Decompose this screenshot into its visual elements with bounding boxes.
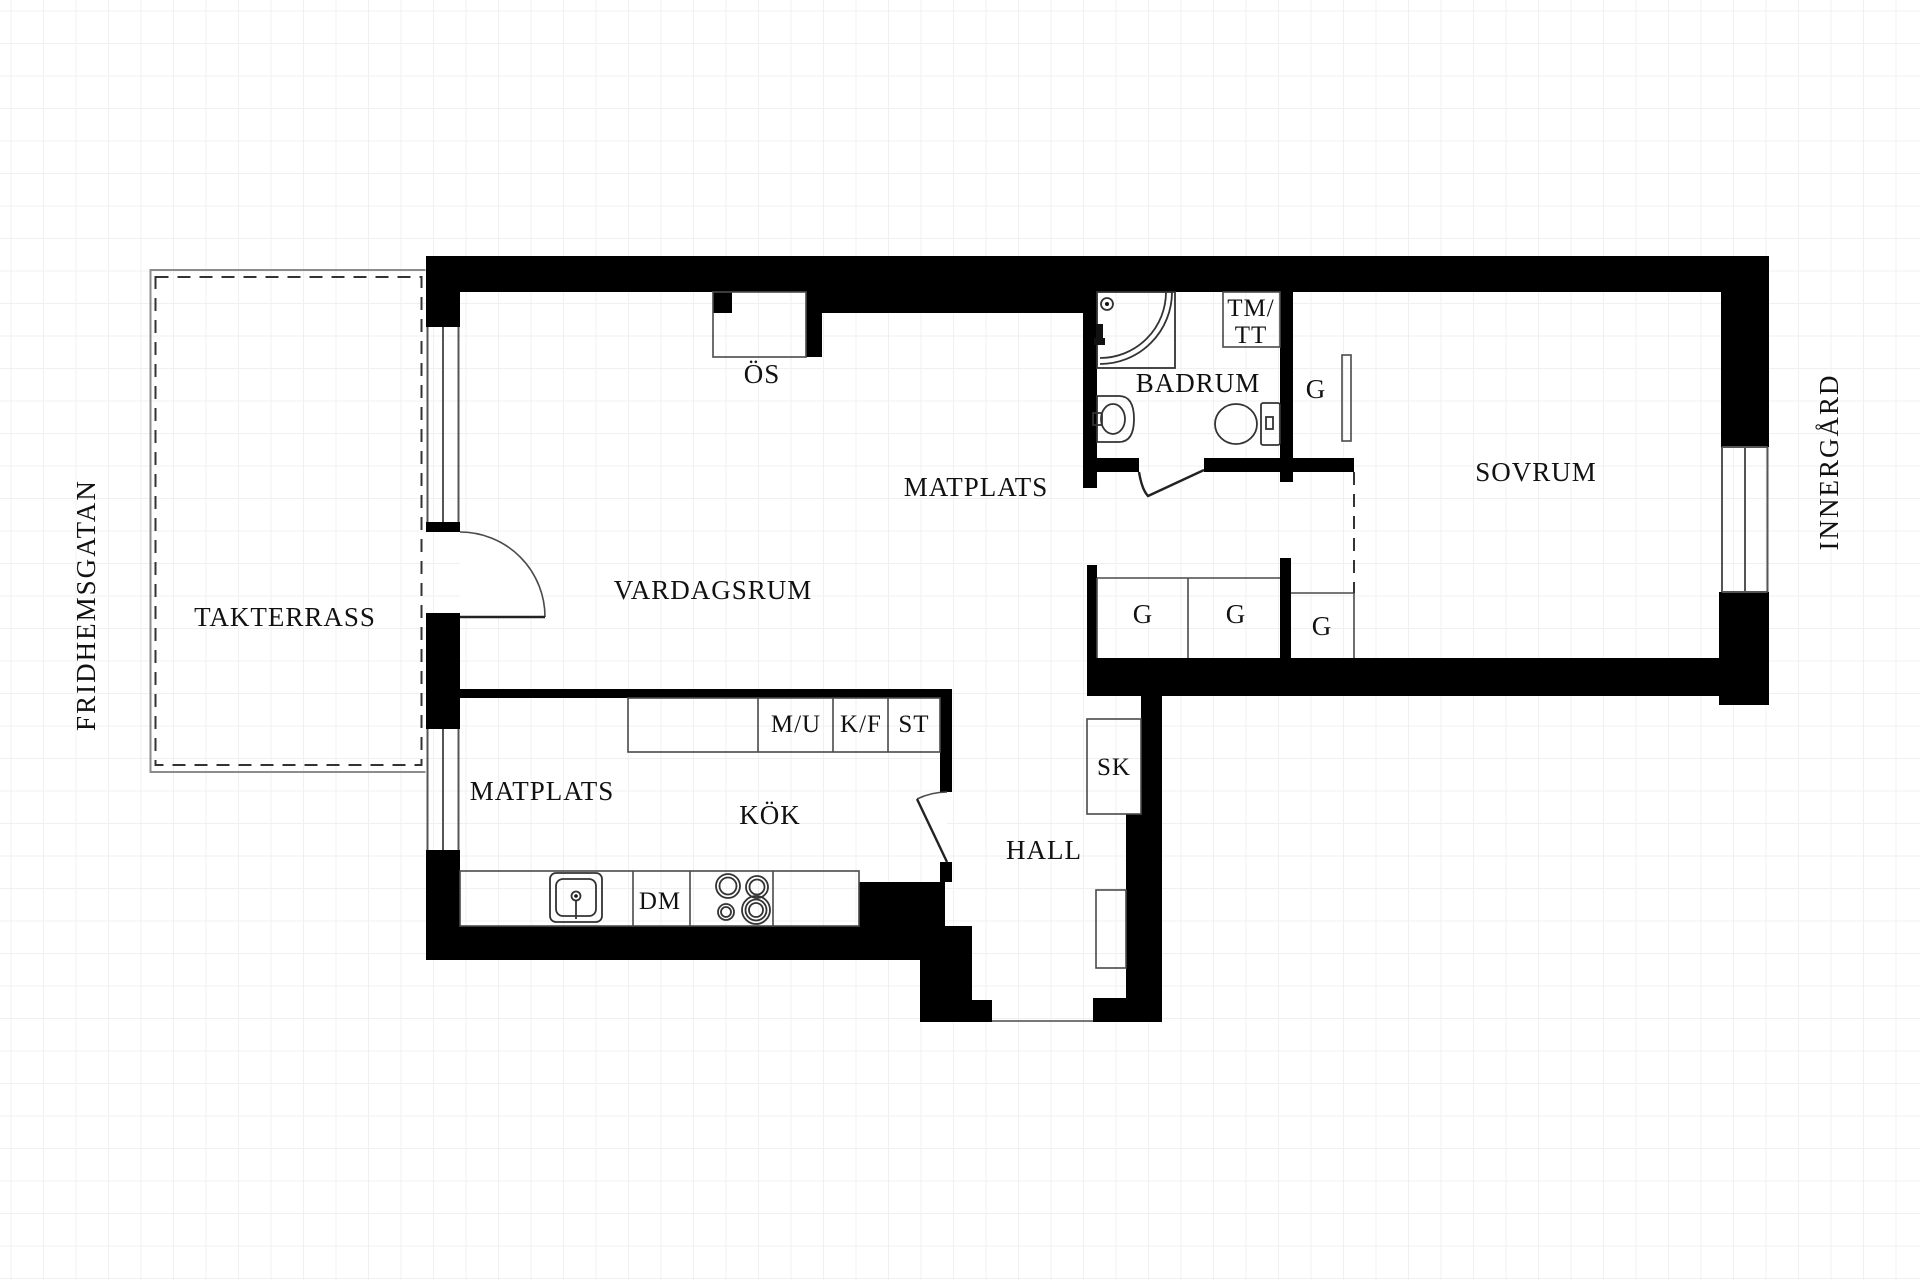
room-label-bedroom: SOVRUM xyxy=(1475,457,1597,487)
wall-hall-right-upper xyxy=(1141,694,1162,816)
shower-icon xyxy=(1094,292,1175,368)
wall-left-stub xyxy=(426,522,460,532)
wall-kitchen-right-upper xyxy=(940,698,952,792)
room-label-bathroom: BADRUM xyxy=(1136,368,1261,398)
wall-bottom-long xyxy=(1087,658,1721,696)
fridge-freezer-label: K/F xyxy=(840,711,882,738)
wall-fireplace-stub xyxy=(713,290,732,313)
toilet-icon xyxy=(1215,403,1280,445)
fixture-label-fireplace: ÖS xyxy=(744,359,781,389)
wall-wardrobe-divider xyxy=(1280,558,1291,660)
wall-right-lower-chunk xyxy=(1719,592,1769,705)
wall-wardrobe-left-stub xyxy=(1087,565,1097,660)
wall-top-deep-section xyxy=(822,290,1097,313)
wall-kitchen-door-stub xyxy=(940,862,952,882)
wardrobe-label-3: G xyxy=(1312,611,1333,641)
bedroom-window xyxy=(1722,447,1768,592)
labels: FRIDHEMSGATAN INNERGÅRD TAKTERRASS VARDA… xyxy=(71,295,1844,915)
hall-radiator xyxy=(1096,890,1126,968)
dishwasher-label: DM xyxy=(639,888,681,915)
street-label-left: FRIDHEMSGATAN xyxy=(71,479,101,731)
micro-oven-label: M/U xyxy=(771,711,821,738)
washbasin-icon xyxy=(1093,396,1134,442)
wardrobe-label-top: G xyxy=(1306,374,1327,404)
sink-icon xyxy=(550,873,602,922)
wardrobe-row-outline xyxy=(1097,578,1280,658)
terrace-dashed-border xyxy=(156,277,422,765)
wall-fireplace-right-bar xyxy=(806,290,822,357)
wall-vestibule-left xyxy=(920,926,972,1022)
wall-kitchen-top xyxy=(460,689,952,698)
room-label-dining-kitchen: MATPLATS xyxy=(470,776,615,806)
room-label-kitchen: KÖK xyxy=(739,800,801,830)
wardrobe-label-1: G xyxy=(1133,599,1154,629)
wall-bathroom-right xyxy=(1280,290,1293,482)
room-label-hall: HALL xyxy=(1006,835,1082,865)
terrace-solid-border xyxy=(151,270,426,772)
room-label-terrace: TAKTERRASS xyxy=(194,602,376,632)
floor-plan-drawing: FRIDHEMSGATAN INNERGÅRD TAKTERRASS VARDA… xyxy=(0,0,1920,1280)
fixture-label-washer: TM/ xyxy=(1227,295,1274,322)
floor-plan-page: FRIDHEMSGATAN INNERGÅRD TAKTERRASS VARDA… xyxy=(0,0,1920,1280)
wall-vestibule-right-foot xyxy=(1093,998,1126,1022)
wall-hall-right-lower xyxy=(1126,814,1162,1022)
stove-icon xyxy=(716,874,770,924)
courtyard-label-right: INNERGÅRD xyxy=(1814,374,1844,551)
wall-bathroom-bottom-left xyxy=(1086,458,1139,472)
closet-door-panel xyxy=(1342,355,1351,441)
wall-vestibule-left-foot xyxy=(972,1000,992,1022)
cleaning-closet-label: SK xyxy=(1097,754,1131,781)
wall-bathroom-bottom-right xyxy=(1204,458,1354,472)
wall-right-upper-chunk xyxy=(1721,290,1769,447)
room-label-living: VARDAGSRUM xyxy=(614,575,813,605)
wall-top xyxy=(426,256,1769,292)
wall-left-mid xyxy=(426,613,460,729)
fixture-label-dryer: TT xyxy=(1235,322,1268,349)
room-label-dining-upper: MATPLATS xyxy=(904,472,1049,502)
wardrobe-label-2: G xyxy=(1226,599,1247,629)
terrace-outline xyxy=(151,270,426,772)
kitchen-window xyxy=(428,729,459,850)
living-room-window xyxy=(428,327,459,522)
wall-left-top xyxy=(426,256,460,327)
wall-kitchen-hall-corner xyxy=(859,882,945,926)
living-room-door-swing-fill xyxy=(460,532,545,617)
pantry-label: ST xyxy=(898,711,929,738)
wall-bottom xyxy=(426,926,920,960)
